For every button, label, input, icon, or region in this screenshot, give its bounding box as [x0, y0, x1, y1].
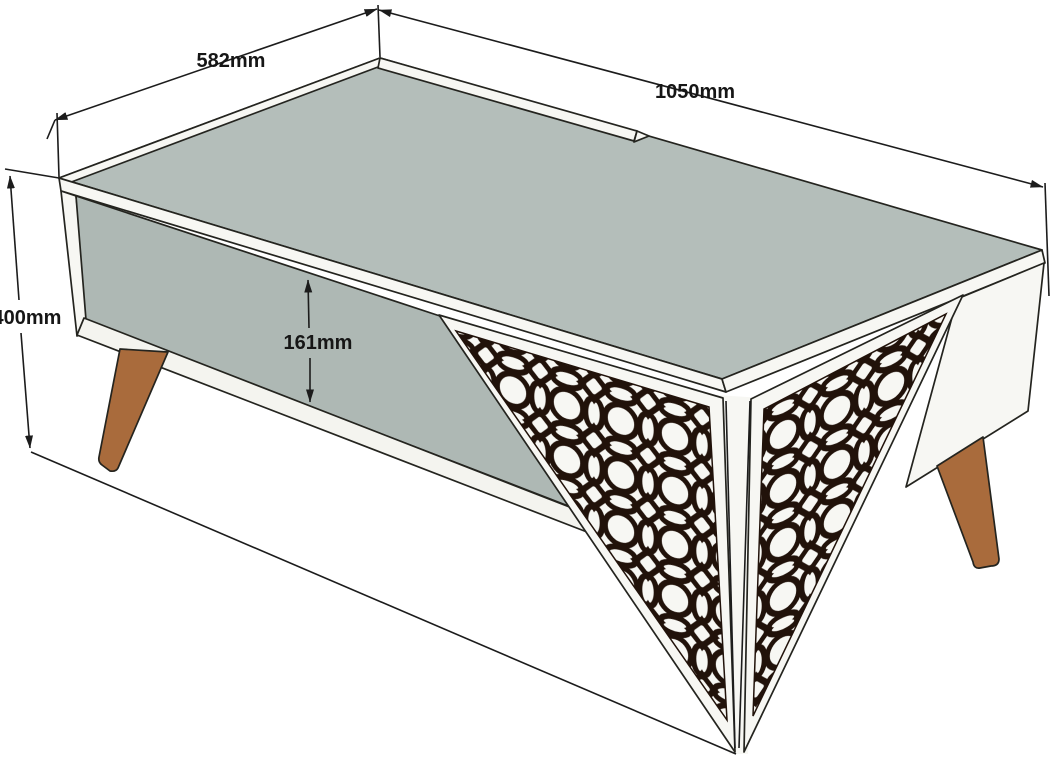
dimension-label-400: 400mm — [0, 307, 61, 329]
dimension-line-400-upper — [10, 176, 19, 300]
decor-panel-right-pattern — [753, 314, 946, 716]
dimension-line-400-lower — [21, 333, 30, 448]
dimension-line-161-upper — [308, 280, 309, 328]
coffee-table-diagram: 582mm 1050mm 400mm 161mm — [0, 0, 1054, 757]
coffee-table — [59, 58, 1045, 754]
extension-line-apex — [378, 5, 380, 57]
dimension-label-161: 161mm — [284, 332, 353, 354]
front-left-leg — [99, 349, 168, 471]
extension-line-right — [1045, 183, 1049, 296]
extension-line — [57, 113, 59, 177]
dimension-label-582: 582mm — [197, 50, 266, 72]
dimension-label-1050: 1050mm — [655, 81, 735, 103]
dimension-drawing-canvas: 582mm 1050mm 400mm 161mm — [0, 0, 1054, 757]
extension-overshoot — [47, 120, 55, 139]
extension-line-top — [5, 169, 59, 178]
